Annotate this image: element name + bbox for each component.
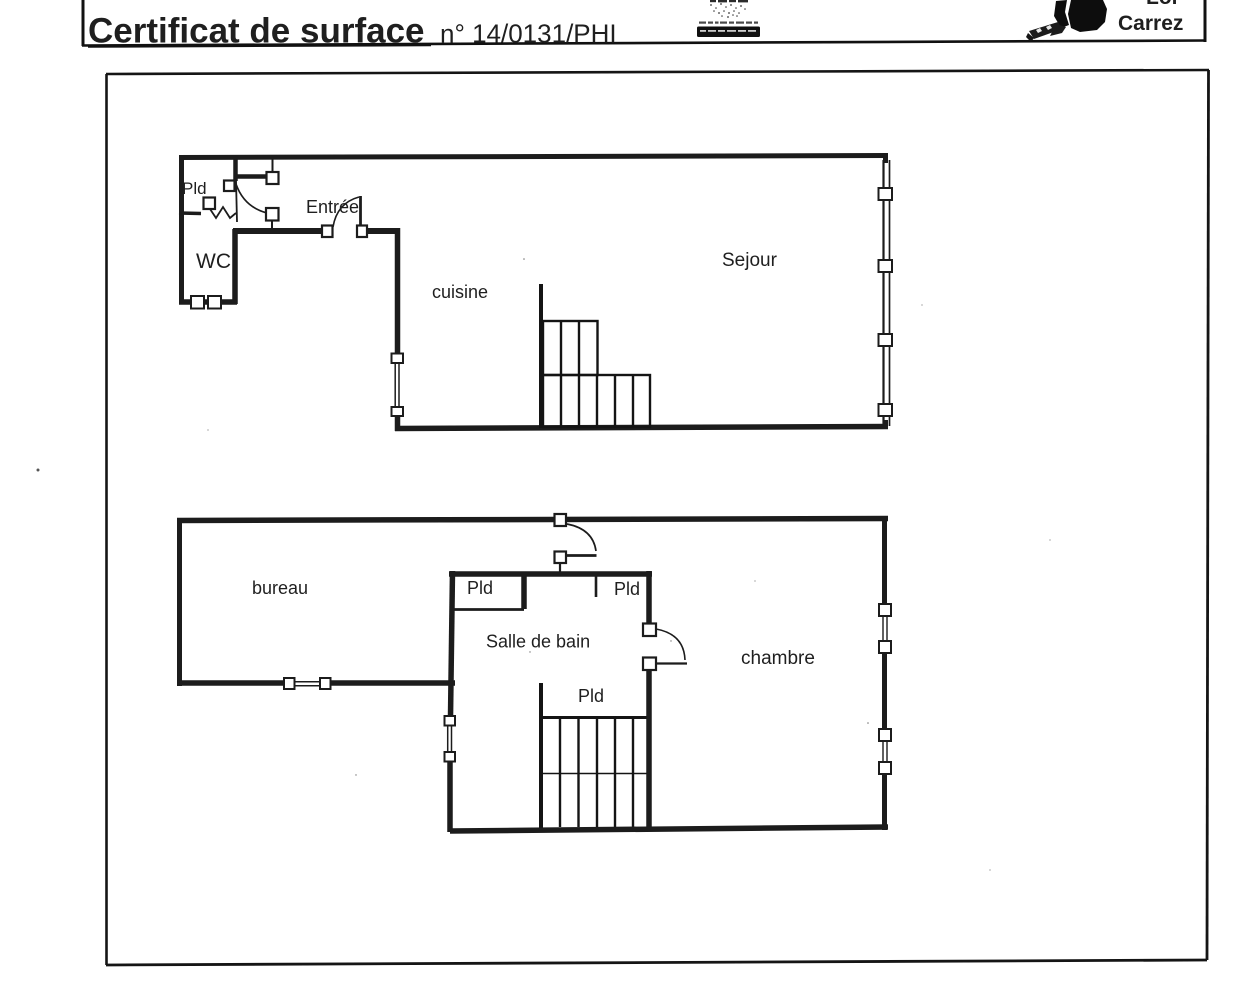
svg-text:Carrez: Carrez xyxy=(1118,12,1183,35)
svg-text:Pld: Pld xyxy=(182,179,207,198)
svg-text:cuisine: cuisine xyxy=(432,282,488,302)
svg-text:Salle de bain: Salle de bain xyxy=(486,632,590,652)
svg-text:Pld: Pld xyxy=(578,686,604,706)
svg-text:Pld: Pld xyxy=(467,578,493,598)
svg-text:chambre: chambre xyxy=(741,648,815,669)
svg-text:Entrée: Entrée xyxy=(306,197,359,217)
svg-text:n° 14/0131/PHI: n° 14/0131/PHI xyxy=(440,19,617,49)
svg-text:bureau: bureau xyxy=(252,578,308,598)
svg-text:Sejour: Sejour xyxy=(722,250,778,271)
svg-text:Loi: Loi xyxy=(1146,0,1178,9)
svg-text:Pld: Pld xyxy=(614,579,640,599)
svg-text:WC: WC xyxy=(196,250,231,273)
